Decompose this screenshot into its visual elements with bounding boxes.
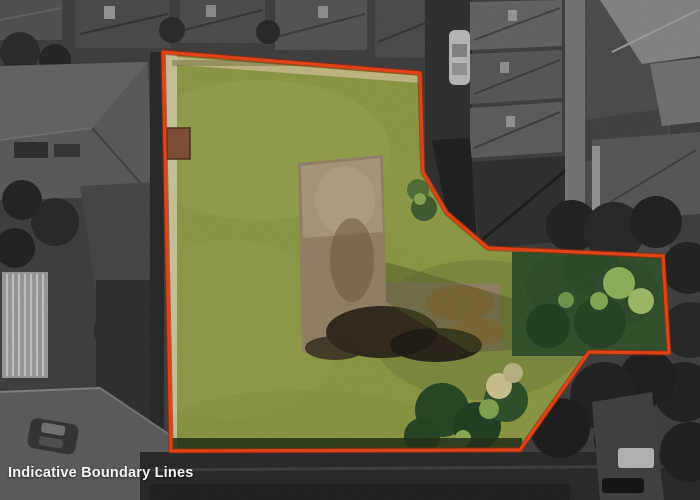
aerial-photo: Indicative Boundary Lines: [0, 0, 700, 500]
caption: Indicative Boundary Lines: [8, 465, 194, 481]
grain-overlay: [0, 0, 700, 500]
aerial-scene: [0, 0, 700, 500]
